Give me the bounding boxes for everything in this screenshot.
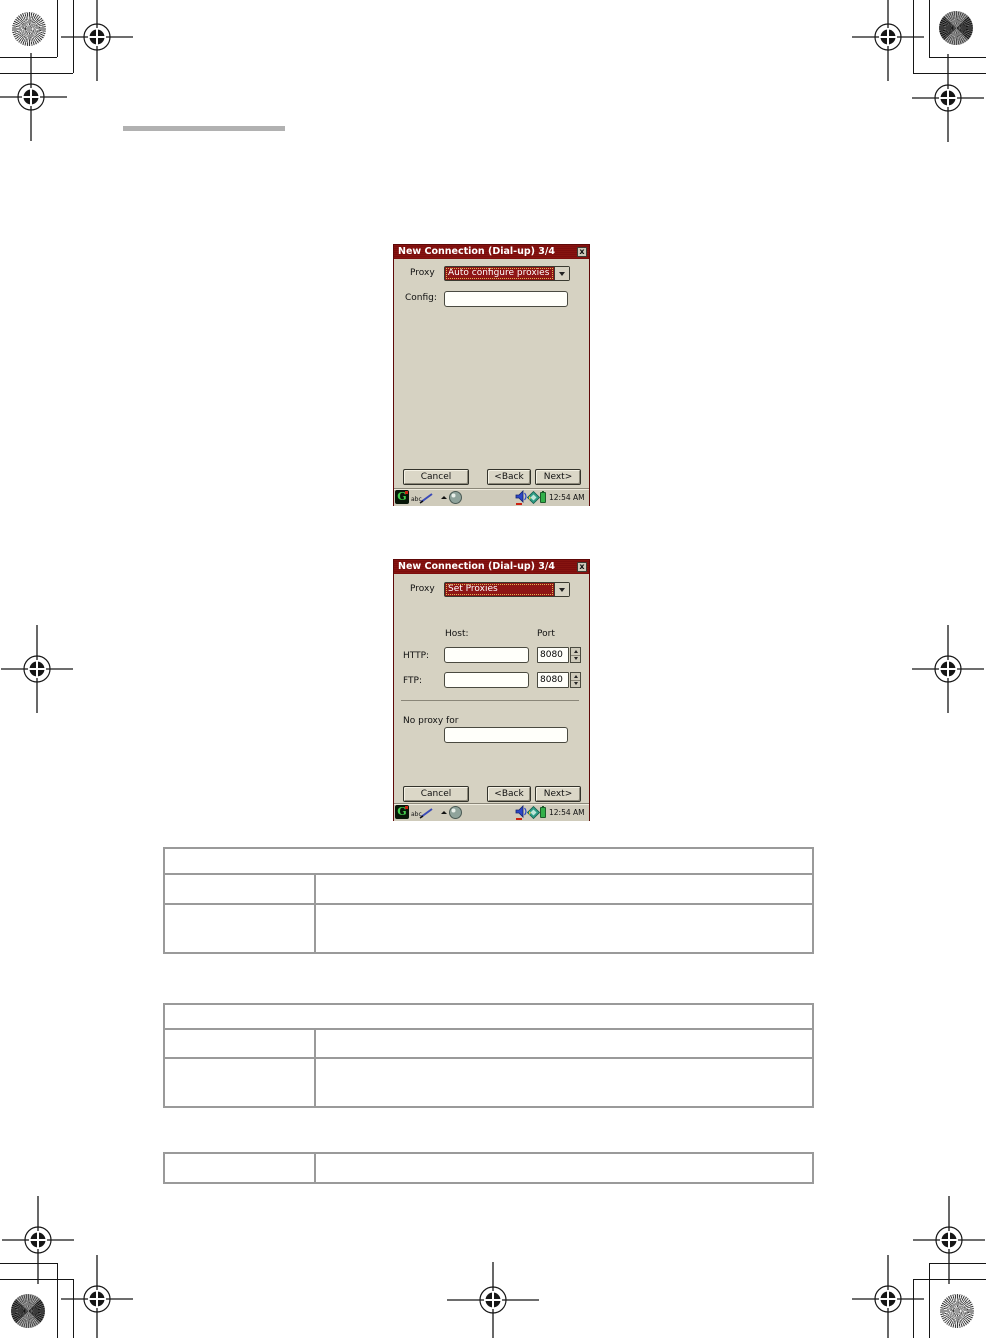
table-header-cell bbox=[164, 848, 813, 874]
no-proxy-label: No proxy for bbox=[403, 716, 458, 726]
proxy-dropdown-value: Auto configure proxies bbox=[445, 267, 554, 280]
heading-rule bbox=[123, 126, 285, 131]
registration-mark-icon bbox=[840, 1251, 936, 1338]
http-host-input[interactable] bbox=[444, 647, 529, 663]
cancel-button[interactable]: Cancel bbox=[403, 786, 469, 802]
config-label: Config: bbox=[405, 293, 437, 303]
dialog-titlebar: New Connection (Dial-up) 3/4 x bbox=[394, 245, 589, 259]
calibration-target-icon bbox=[939, 11, 973, 45]
table-row bbox=[164, 904, 813, 953]
ftp-port-stepper[interactable] bbox=[570, 672, 581, 688]
host-column-label: Host: bbox=[445, 629, 469, 639]
table-row bbox=[164, 874, 813, 904]
globe-icon[interactable] bbox=[449, 491, 462, 504]
manual-page: New Connection (Dial-up) 3/4 x Proxy Aut… bbox=[0, 0, 986, 1338]
no-proxy-input[interactable] bbox=[444, 727, 568, 743]
card-icon[interactable] bbox=[527, 491, 540, 504]
battery-icon bbox=[540, 807, 546, 818]
globe-icon[interactable] bbox=[449, 806, 462, 819]
next-button[interactable]: Next> bbox=[535, 469, 581, 485]
back-button[interactable]: <Back bbox=[487, 786, 531, 802]
ftp-host-input[interactable] bbox=[444, 672, 529, 688]
description-table-3 bbox=[163, 1152, 814, 1184]
dialog-title: New Connection (Dial-up) 3/4 bbox=[398, 246, 555, 257]
spin-down-icon bbox=[574, 682, 578, 685]
description-table-1 bbox=[163, 847, 814, 954]
spin-up-icon bbox=[574, 650, 578, 653]
back-button[interactable]: <Back bbox=[487, 469, 531, 485]
dialog-body: Proxy Auto configure proxies Config: Can… bbox=[394, 259, 589, 488]
registration-mark-icon bbox=[900, 50, 986, 146]
cancel-button[interactable]: Cancel bbox=[403, 469, 469, 485]
proxy-label: Proxy bbox=[410, 584, 435, 594]
description-table-2 bbox=[163, 1003, 814, 1108]
proxy-dropdown-value: Set Proxies bbox=[445, 583, 554, 596]
http-label: HTTP: bbox=[403, 651, 429, 661]
proxy-dropdown[interactable]: Auto configure proxies bbox=[444, 266, 570, 281]
http-port-input[interactable] bbox=[537, 647, 569, 663]
ftp-label: FTP: bbox=[403, 676, 422, 686]
port-column-label: Port bbox=[537, 629, 555, 639]
calibration-target-icon bbox=[11, 1294, 45, 1328]
dialog-body: Proxy Set Proxies Host: Port HTTP: FTP: … bbox=[394, 574, 589, 803]
spin-down-icon bbox=[574, 657, 578, 660]
registration-mark-icon bbox=[0, 49, 79, 145]
table-row bbox=[164, 1029, 813, 1058]
chevron-down-icon bbox=[559, 588, 565, 592]
table-row bbox=[164, 1153, 813, 1183]
close-icon[interactable]: x bbox=[577, 247, 587, 257]
pencil-icon[interactable] bbox=[419, 492, 435, 504]
table-header-cell bbox=[164, 1004, 813, 1029]
clock-text[interactable]: 12:54 AM bbox=[549, 493, 585, 502]
taskbar: G abc 12:54 AM bbox=[394, 803, 589, 821]
dropdown-arrow-button[interactable] bbox=[554, 267, 569, 280]
up-arrow-icon[interactable] bbox=[441, 811, 447, 814]
registration-mark-icon bbox=[900, 621, 986, 717]
dialog-screenshot-set-proxies: New Connection (Dial-up) 3/4 x Proxy Set… bbox=[393, 559, 590, 821]
proxy-label: Proxy bbox=[410, 268, 435, 278]
next-button[interactable]: Next> bbox=[535, 786, 581, 802]
registration-mark-icon bbox=[0, 621, 85, 717]
chevron-down-icon bbox=[559, 272, 565, 276]
up-arrow-icon[interactable] bbox=[441, 496, 447, 499]
table-row bbox=[164, 1058, 813, 1107]
http-port-stepper[interactable] bbox=[570, 647, 581, 663]
battery-icon bbox=[540, 492, 546, 503]
card-icon[interactable] bbox=[527, 806, 540, 819]
calibration-target-icon bbox=[12, 12, 46, 46]
taskbar: G abc 12:54 AM bbox=[394, 488, 589, 506]
clock-text[interactable]: 12:54 AM bbox=[549, 808, 585, 817]
pencil-icon[interactable] bbox=[419, 807, 435, 819]
spin-up-icon bbox=[574, 675, 578, 678]
ftp-port-input[interactable] bbox=[537, 672, 569, 688]
registration-mark-icon bbox=[445, 1252, 541, 1338]
dialog-screenshot-auto-configure: New Connection (Dial-up) 3/4 x Proxy Aut… bbox=[393, 244, 590, 506]
dialog-title: New Connection (Dial-up) 3/4 bbox=[398, 561, 555, 572]
dialog-titlebar: New Connection (Dial-up) 3/4 x bbox=[394, 560, 589, 574]
launcher-icon[interactable]: G bbox=[395, 805, 409, 819]
config-input[interactable] bbox=[444, 291, 568, 307]
calibration-target-icon bbox=[940, 1294, 974, 1328]
section-divider bbox=[401, 700, 579, 701]
close-icon[interactable]: x bbox=[577, 562, 587, 572]
dropdown-arrow-button[interactable] bbox=[554, 583, 569, 596]
proxy-dropdown[interactable]: Set Proxies bbox=[444, 582, 570, 597]
launcher-icon[interactable]: G bbox=[395, 490, 409, 504]
registration-mark-icon bbox=[49, 1251, 145, 1338]
